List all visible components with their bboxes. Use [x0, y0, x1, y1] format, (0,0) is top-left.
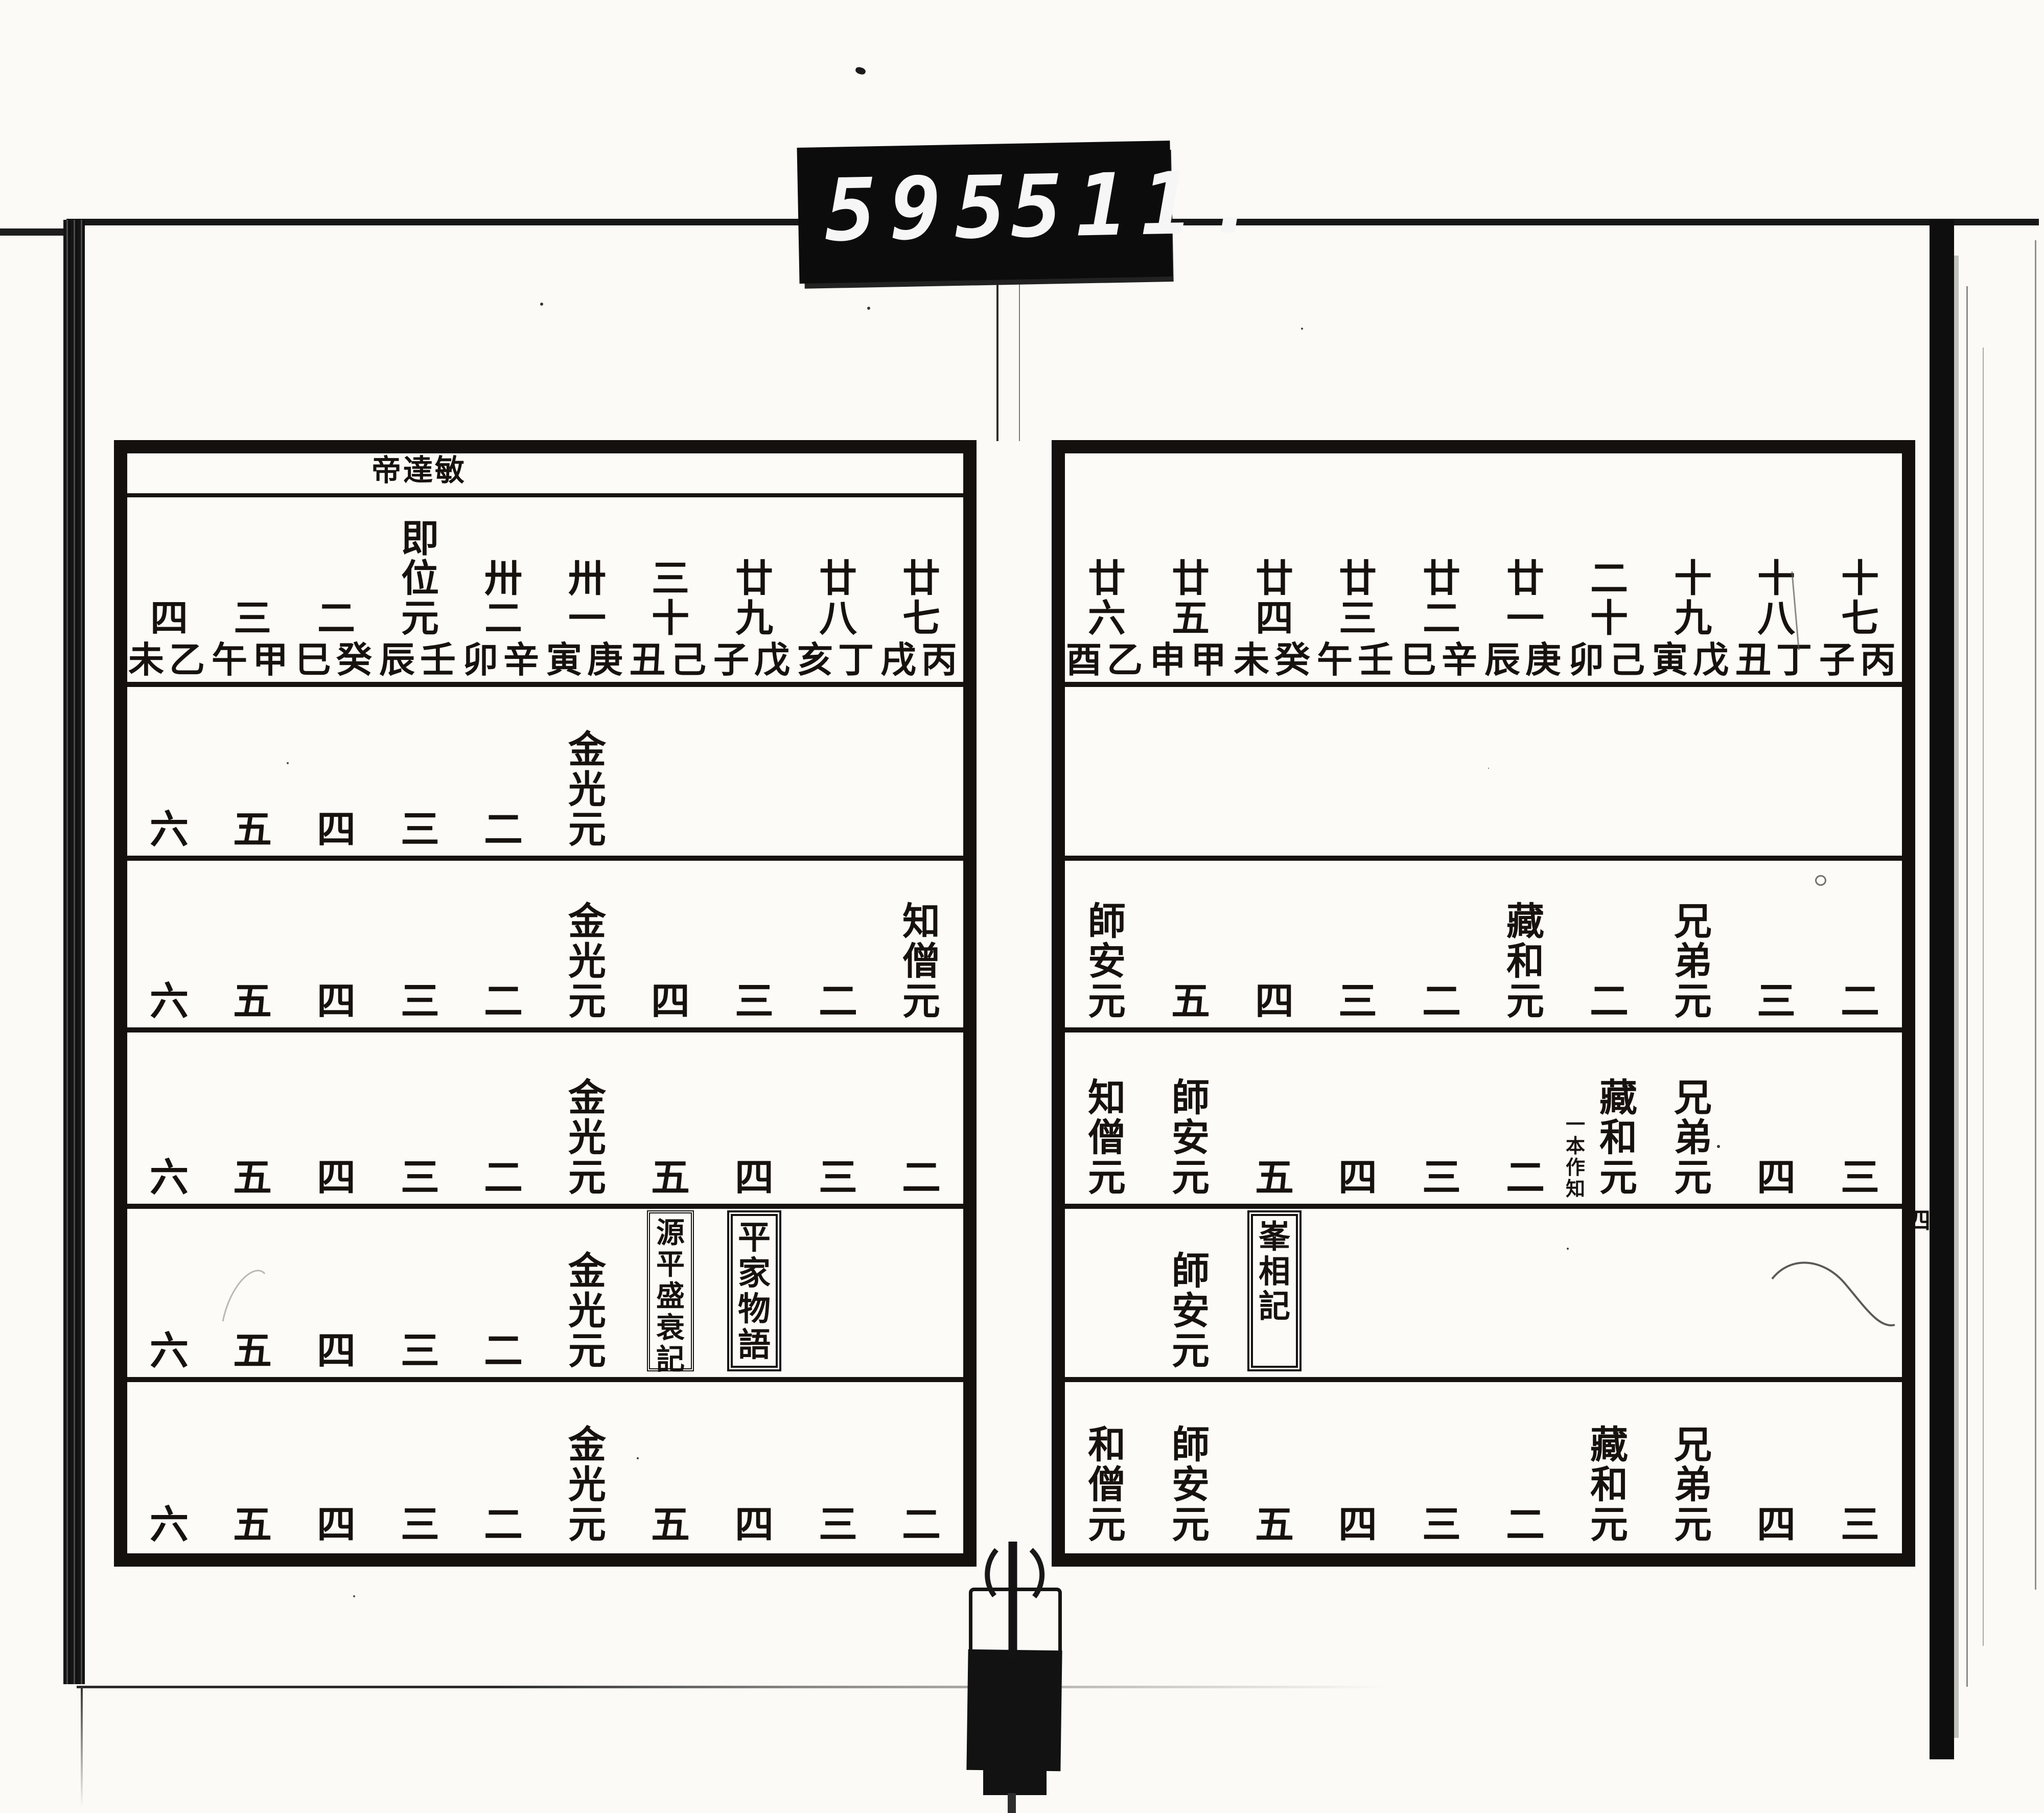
year-count-cell: 二 [475, 982, 531, 1022]
ganzhi-label: 戌丙 [870, 641, 972, 681]
emperor-reign-label: 帝達敏 [358, 454, 480, 488]
year-count-cell: 六 [141, 1158, 197, 1198]
era-start-cell: 兄弟元 [1665, 902, 1721, 1022]
binding-ink-streak [1008, 1793, 1016, 1813]
year-count-cell: 三 [1832, 1505, 1888, 1545]
era-start-cell: 知僧元 [1079, 1078, 1135, 1198]
year-count-cell: 五 [224, 810, 281, 850]
year-number: 廿五 [1163, 559, 1219, 639]
year-count-cell: 二 [893, 1158, 949, 1198]
year-count-cell: 四 [308, 982, 364, 1022]
year-count-cell: 三 [810, 1505, 866, 1545]
small-ring-mark [1815, 875, 1826, 886]
year-count-cell: 五 [1246, 1505, 1303, 1545]
row-separator [1065, 856, 1902, 861]
book-bottom-edge [77, 1686, 1385, 1688]
year-number: 廿八 [810, 559, 866, 639]
year-count-cell: 四 [1330, 1505, 1386, 1545]
source-title-box: 峯相記 [1247, 1210, 1302, 1371]
year-count-cell: 四 [726, 1158, 782, 1198]
counter-left-digits: 595 [824, 156, 1020, 262]
year-count-cell: 二 [1497, 1158, 1553, 1198]
year-count-cell: 六 [141, 810, 197, 850]
era-start-cell: 金光元 [559, 1426, 615, 1545]
year-count-cell: 五 [1163, 982, 1219, 1022]
year-count-cell: 三 [810, 1158, 866, 1198]
era-start-cell: 金光元 [559, 1252, 615, 1371]
scanned-book-spread: 595 511. 帝達敏 四 四未乙三午甲二巳癸即位元辰壬卅二卯辛卅一寅庚三十丑… [0, 0, 2044, 1813]
row-separator [127, 1377, 963, 1382]
year-count-cell: 三 [726, 982, 782, 1022]
year-number: 廿一 [1497, 559, 1553, 639]
year-count-cell: 二 [810, 982, 866, 1022]
year-count-cell: 二 [1581, 982, 1637, 1022]
row-separator [127, 856, 963, 861]
year-number: 即位元 [392, 519, 448, 639]
counter-right-digits: 511. [1010, 151, 1271, 258]
year-count-cell: 四 [1330, 1158, 1386, 1198]
year-number: 卅一 [559, 559, 615, 639]
era-start-cell: 金光元 [559, 902, 615, 1022]
era-start-cell: 兄弟元 [1665, 1426, 1721, 1545]
year-count-cell: 四 [1748, 1505, 1804, 1545]
book-right-edge-soft [1954, 256, 1959, 1738]
year-count-cell: 四 [1246, 982, 1303, 1022]
year-count-cell: 三 [1832, 1158, 1888, 1198]
page-stack-line [1966, 286, 1968, 1687]
era-start-cell: 藏和元 [1581, 1426, 1637, 1545]
year-count-cell: 三 [392, 810, 448, 850]
year-count-cell: 四 [308, 1505, 364, 1545]
scan-left-top-edge [0, 228, 69, 236]
year-number: 十七 [1832, 559, 1888, 639]
year-count-cell: 四 [308, 1158, 364, 1198]
year-number: 二十 [1581, 559, 1637, 639]
row-separator [1065, 1377, 1902, 1382]
year-count-cell: 四 [1748, 1158, 1804, 1198]
row-separator [1065, 1027, 1902, 1032]
binding-ink-blob [966, 1649, 1062, 1772]
row-separator [127, 1204, 963, 1209]
year-number: 廿九 [726, 559, 782, 639]
year-count-cell: 三 [1748, 982, 1804, 1022]
year-number: 廿六 [1079, 559, 1135, 639]
year-count-cell: 三 [1413, 1505, 1470, 1545]
page-stack-line [1983, 348, 1984, 1646]
year-count-cell: 三 [392, 1332, 448, 1371]
year-number: 廿二 [1413, 559, 1470, 639]
binding-ink-tail [983, 1769, 1047, 1795]
year-count-cell: 四 [308, 810, 364, 850]
year-number: 三 [224, 599, 281, 639]
scan-right-edge [2035, 240, 2036, 1590]
year-count-cell: 二 [1497, 1505, 1553, 1545]
year-count-cell: 二 [1832, 982, 1888, 1022]
year-count-cell: 二 [475, 1332, 531, 1371]
source-title-box: 源平盛衰記 [647, 1210, 694, 1371]
year-count-cell: 二 [475, 810, 531, 850]
year-number: 十九 [1665, 559, 1721, 639]
year-number: 二 [308, 599, 364, 639]
year-count-cell: 五 [1246, 1158, 1303, 1198]
binding-knot-box [969, 1588, 1062, 1657]
year-count-cell: 四 [308, 1332, 364, 1371]
year-count-cell: 三 [392, 1158, 448, 1198]
era-start-cell: 師安元 [1163, 1078, 1219, 1198]
era-start-cell: 藏和元 [1497, 902, 1553, 1022]
era-start-cell: 金光元 [559, 1078, 615, 1198]
year-count-cell: 五 [224, 1505, 281, 1545]
row-separator [127, 1027, 963, 1032]
year-number: 卅二 [475, 559, 531, 639]
year-number: 廿七 [893, 559, 949, 639]
year-count-cell: 四 [642, 982, 699, 1022]
year-count-cell: 二 [475, 1158, 531, 1198]
year-count-cell: 三 [1413, 1158, 1470, 1198]
year-count-cell: 六 [141, 982, 197, 1022]
year-count-cell: 二 [893, 1505, 949, 1545]
book-corner-shadow [81, 1687, 83, 1807]
variant-note: 一本作知 [1564, 1114, 1587, 1200]
era-start-cell: 金光元 [559, 730, 615, 850]
year-number: 廿三 [1330, 559, 1386, 639]
year-count-cell: 四 [726, 1505, 782, 1545]
ganzhi-label: 子丙 [1809, 641, 1911, 681]
era-start-cell: 知僧元 [893, 902, 949, 1022]
year-number: 四 [141, 599, 197, 639]
year-count-cell: 六 [141, 1332, 197, 1371]
book-left-edge [63, 220, 85, 1684]
era-start-cell: 師安元 [1079, 902, 1135, 1022]
book-right-edge-band [1930, 220, 1954, 1759]
row-separator [1065, 1204, 1902, 1209]
scan-dust-specks [540, 303, 543, 306]
year-count-cell: 二 [1413, 982, 1470, 1022]
year-number: 廿四 [1246, 559, 1303, 639]
year-count-cell: 三 [392, 982, 448, 1022]
era-start-cell: 兄弟元 [1665, 1078, 1721, 1198]
small-ink-blot [854, 66, 866, 76]
era-start-cell: 師安元 [1163, 1426, 1219, 1545]
year-count-cell: 五 [224, 1158, 281, 1198]
era-start-cell: 藏和元 [1590, 1078, 1646, 1198]
frame-counter-display: 595 511. [797, 141, 1173, 284]
year-count-cell: 六 [141, 1505, 197, 1545]
year-count-cell: 三 [1330, 982, 1386, 1022]
year-count-cell: 五 [642, 1505, 699, 1545]
year-number: 三十 [642, 559, 699, 639]
row-separator [1065, 682, 1902, 687]
year-count-cell: 五 [224, 1332, 281, 1371]
era-start-cell: 和僧元 [1079, 1426, 1135, 1545]
row-separator [127, 682, 963, 687]
era-start-cell: 師安元 [1163, 1252, 1219, 1371]
year-count-cell: 二 [475, 1505, 531, 1545]
year-count-cell: 五 [642, 1158, 699, 1198]
year-count-cell: 三 [392, 1505, 448, 1545]
year-count-cell: 五 [224, 982, 281, 1022]
source-title-box: 平家物語 [727, 1210, 781, 1371]
emperor-strip-separator [127, 493, 963, 497]
